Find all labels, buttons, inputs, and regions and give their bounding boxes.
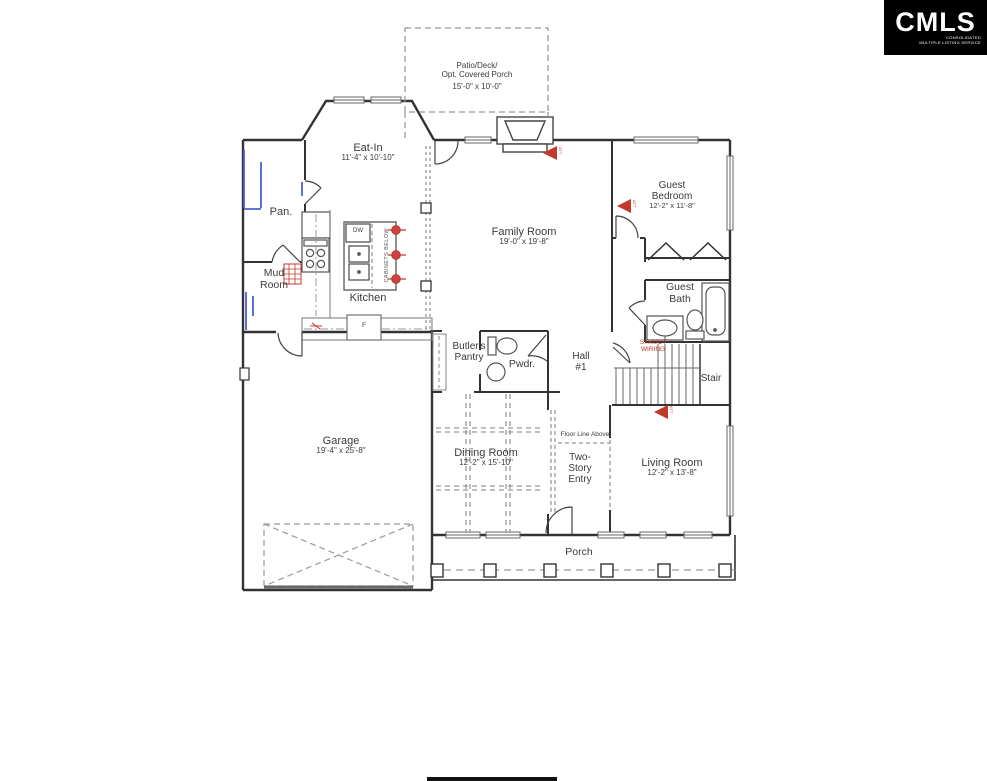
garage-door: [264, 524, 413, 587]
butlers-pantry-cabinet: [433, 334, 446, 390]
room-label-mud-room: Mud Room: [260, 268, 288, 292]
room-label-porch: Porch: [565, 547, 592, 559]
room-label-kitchen: Kitchen: [350, 292, 387, 304]
guest-bath-tub: [702, 283, 729, 341]
cmls-logo-text: CMLS: [895, 9, 976, 36]
powder-toilet: [488, 337, 517, 355]
powder-sink: [487, 363, 505, 381]
dishwasher-label: DW: [353, 228, 363, 235]
struct-wiring-note: STRUCT WIRING: [640, 339, 666, 354]
room-label-guest-bath: Guest Bath: [666, 282, 694, 306]
wall-detail-square: [240, 368, 249, 380]
cmls-logo-subtitle: CONSOLIDATED MULTIPLE LISTING SERVICE: [919, 36, 987, 46]
room-label-powder: Pwdr.: [509, 359, 535, 371]
bottom-bar: [427, 777, 557, 781]
room-label-two-story-entry: Two- Story Entry: [568, 452, 591, 486]
fireplace: [497, 117, 553, 152]
room-label-dining-room: Dining Room 12'-2" x 15'-10": [454, 447, 518, 468]
room-label-garage: Garage 19'-4" x 25'-8": [316, 435, 365, 456]
floor-plan-page: Patio/Deck/ Opt. Covered Porch 15'-0" x …: [0, 0, 987, 781]
att-marker-label-stair: ATT: [669, 406, 673, 413]
room-label-living-room: Living Room 12'-2" x 13'-8": [641, 457, 702, 478]
plumbing-lines: [244, 150, 302, 330]
guest-bath-toilet: [686, 310, 704, 339]
cabinets-below-label: CABINETS BELOW: [384, 228, 390, 283]
floor-line-above-note: Floor Line Above: [561, 431, 610, 438]
room-label-pantry: Pan.: [270, 206, 293, 218]
room-label-patio: Patio/Deck/ Opt. Covered Porch 15'-0" x …: [442, 62, 513, 92]
floor-plan-drawing: [0, 0, 987, 781]
att-marker-label-family: ATT: [558, 147, 562, 154]
room-label-eat-in: Eat-In 11'-4" x 10'-10": [341, 142, 394, 163]
att-marker-label-bedroom: ATT: [632, 200, 636, 207]
room-label-hall: Hall #1: [572, 351, 589, 373]
counter-red-marker: [310, 323, 322, 329]
fridge-label: F: [362, 322, 366, 329]
room-label-family-room: Family Room 19'-0" x 19'-8": [492, 226, 557, 247]
room-label-stair: Stair: [701, 373, 722, 384]
eat-in-columns: [421, 203, 431, 291]
room-label-guest-bedroom: Guest Bedroom 12'-2" x 11'-8": [649, 180, 695, 211]
cmls-logo: CMLS CONSOLIDATED MULTIPLE LISTING SERVI…: [884, 0, 987, 55]
room-label-butlers-pantry: Butler's Pantry: [452, 341, 485, 363]
